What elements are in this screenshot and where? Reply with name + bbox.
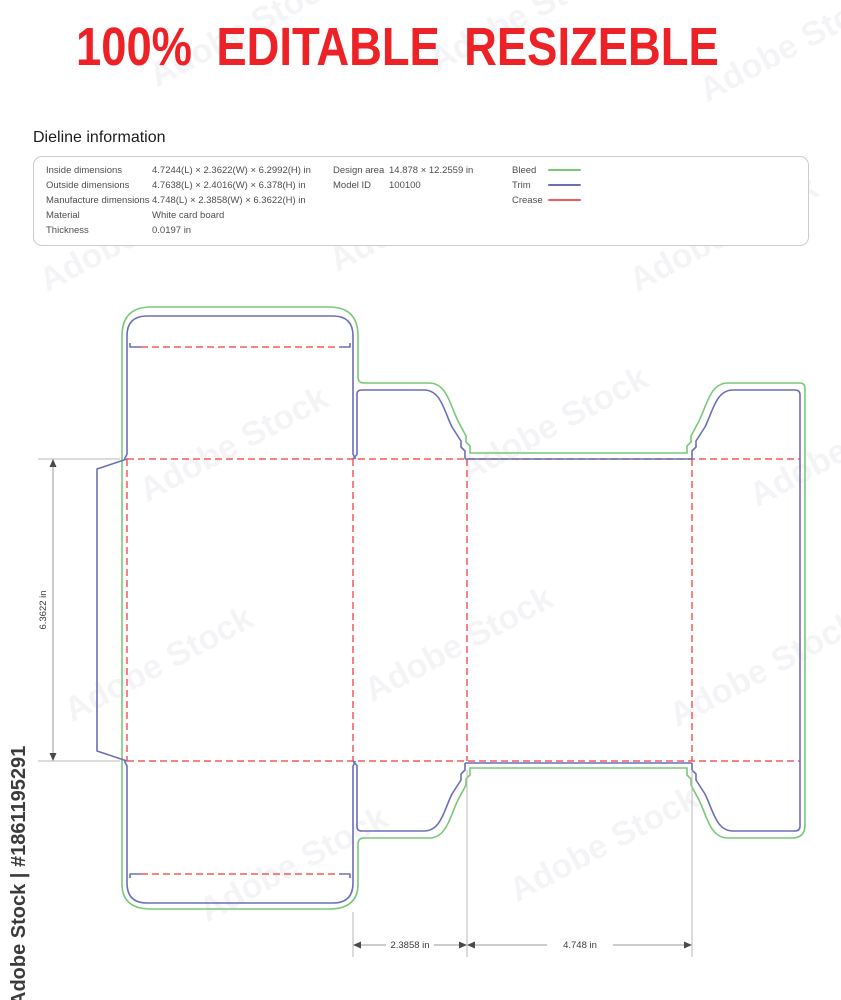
dimension-extension-lines <box>38 459 692 957</box>
stock-image-canvas: Adobe Stock Adobe Stock Adobe Stock Adob… <box>0 0 841 1000</box>
side-width-dimension-label: 2.3858 in <box>390 940 429 951</box>
dieline-drawing: 6.3622 in 2.3858 in 4.748 in <box>0 0 841 1000</box>
front-width-dimension-label: 4.748 in <box>563 940 597 951</box>
bottom-flaps-cut <box>353 761 800 831</box>
crease-lines <box>127 347 800 874</box>
dimension-arrowheads <box>50 459 693 949</box>
top-flaps-cut <box>353 390 800 459</box>
top-lid-cut <box>125 316 356 459</box>
height-dimension-label: 6.3622 in <box>38 590 49 629</box>
bleed-outline <box>122 307 805 909</box>
stock-id-stamp: Adobe Stock | #1861195291 <box>8 746 31 1000</box>
bottom-lid-cut <box>125 761 356 903</box>
